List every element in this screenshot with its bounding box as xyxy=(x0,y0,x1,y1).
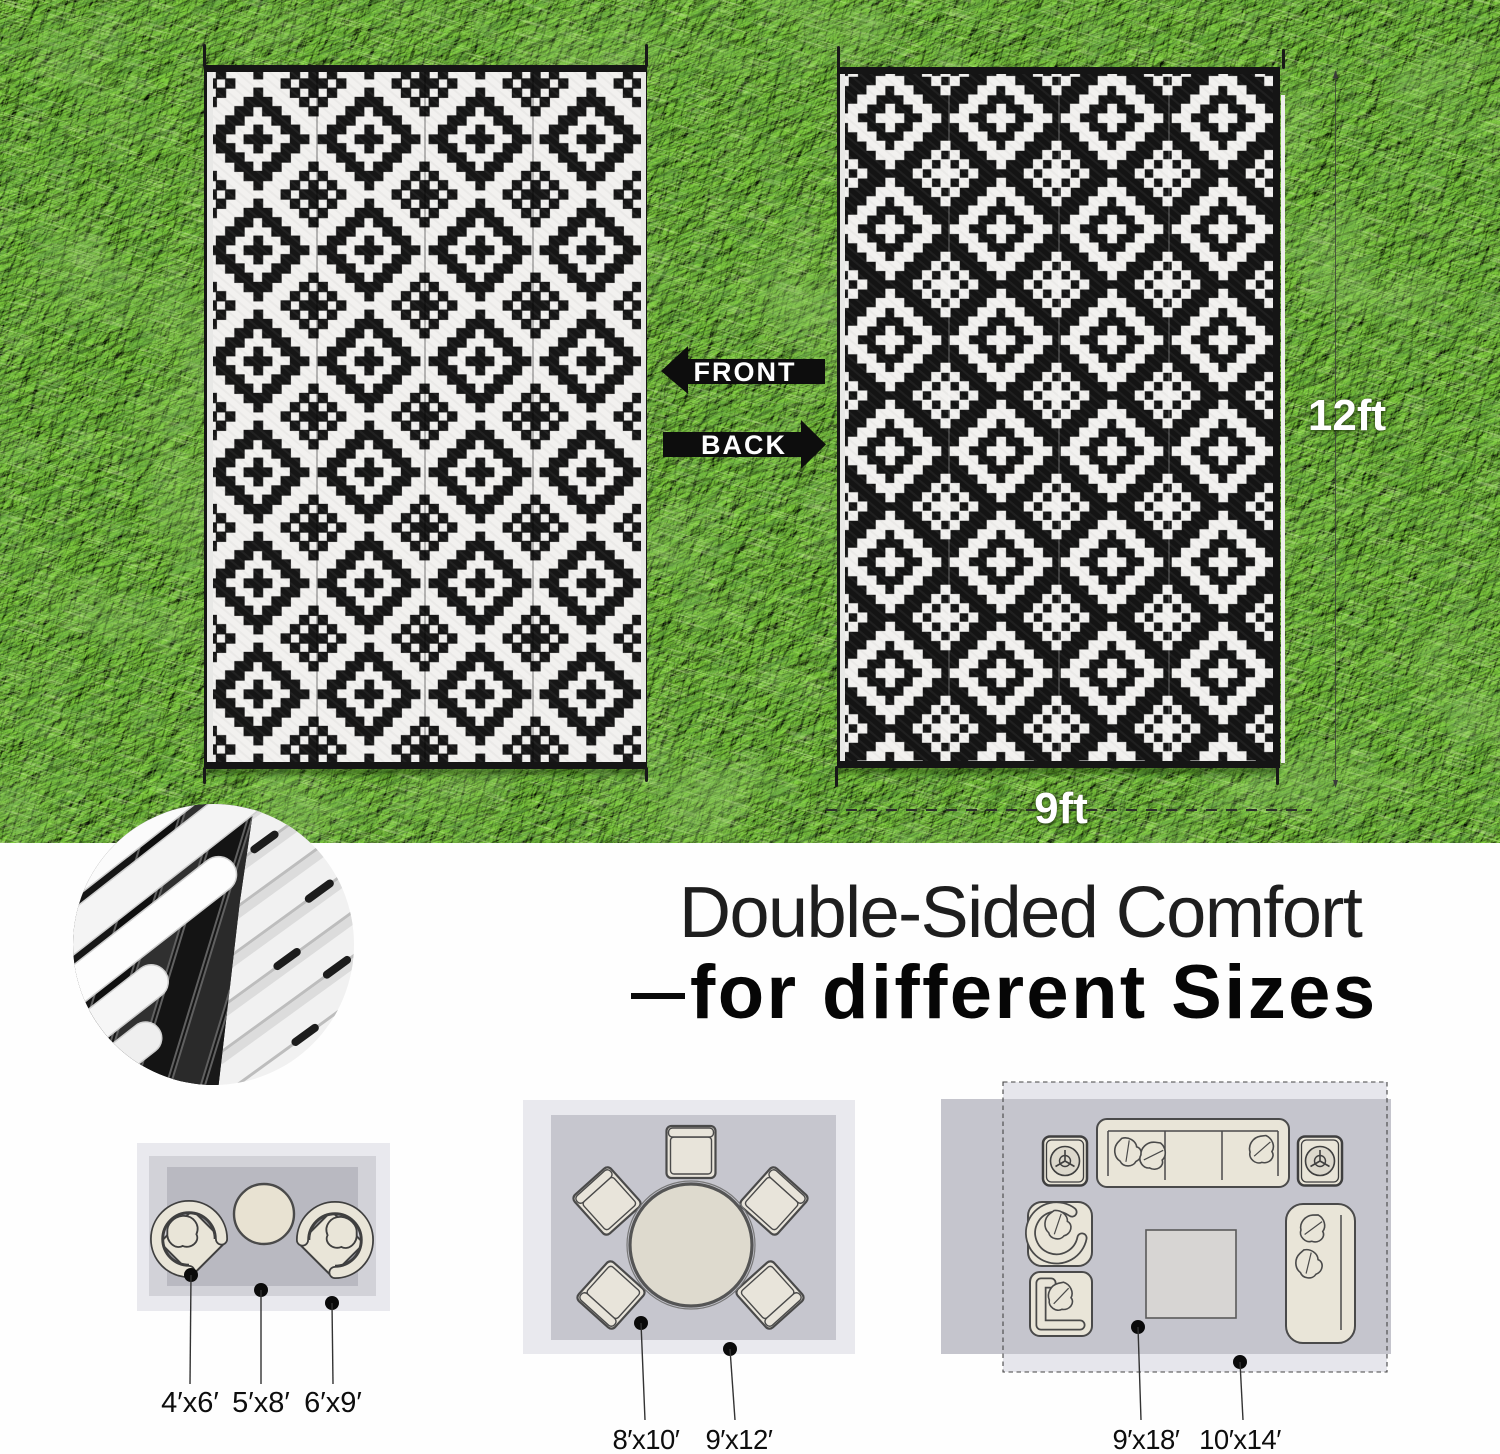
svg-text:for different Sizes: for different Sizes xyxy=(690,950,1377,1035)
svg-text:6′x9′: 6′x9′ xyxy=(304,1387,362,1419)
svg-text:9ft: 9ft xyxy=(1034,784,1088,833)
svg-text:5′x8′: 5′x8′ xyxy=(232,1387,290,1419)
svg-text:9′x18′: 9′x18′ xyxy=(1113,1424,1180,1454)
svg-text:9′x12′: 9′x12′ xyxy=(706,1424,773,1454)
svg-text:FRONT: FRONT xyxy=(694,357,797,387)
svg-text:10′x14′: 10′x14′ xyxy=(1199,1424,1281,1454)
svg-text:8′x10′: 8′x10′ xyxy=(613,1424,680,1454)
svg-text:12ft: 12ft xyxy=(1308,391,1387,440)
svg-text:4′x6′: 4′x6′ xyxy=(161,1387,219,1419)
svg-text:BACK: BACK xyxy=(701,430,787,460)
svg-text:Double-Sided Comfort: Double-Sided Comfort xyxy=(679,873,1363,953)
